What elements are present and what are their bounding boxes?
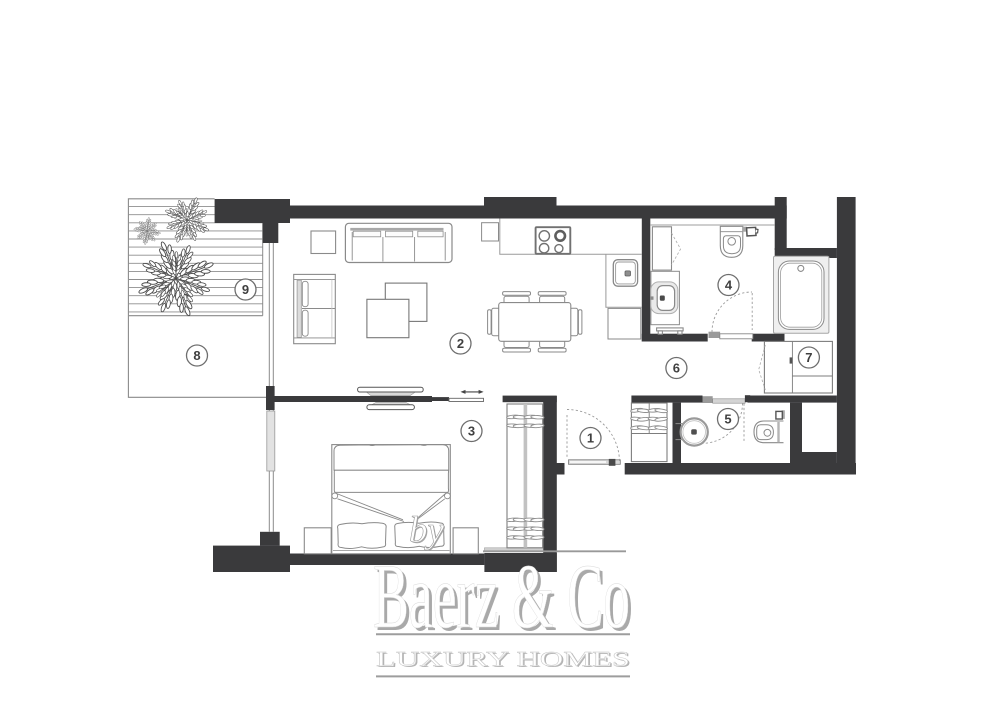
svg-text:Baerz & Co: Baerz & Co	[373, 545, 630, 647]
svg-text:2: 2	[457, 336, 464, 351]
svg-text:1: 1	[587, 431, 594, 446]
svg-text:3: 3	[468, 424, 475, 439]
svg-text:LUXURY HOMES: LUXURY HOMES	[376, 647, 630, 671]
svg-text:9: 9	[242, 282, 249, 297]
svg-text:7: 7	[805, 350, 812, 365]
svg-text:5: 5	[724, 412, 731, 427]
svg-text:4: 4	[725, 278, 733, 293]
svg-text:8: 8	[193, 348, 200, 363]
svg-text:6: 6	[673, 361, 680, 376]
